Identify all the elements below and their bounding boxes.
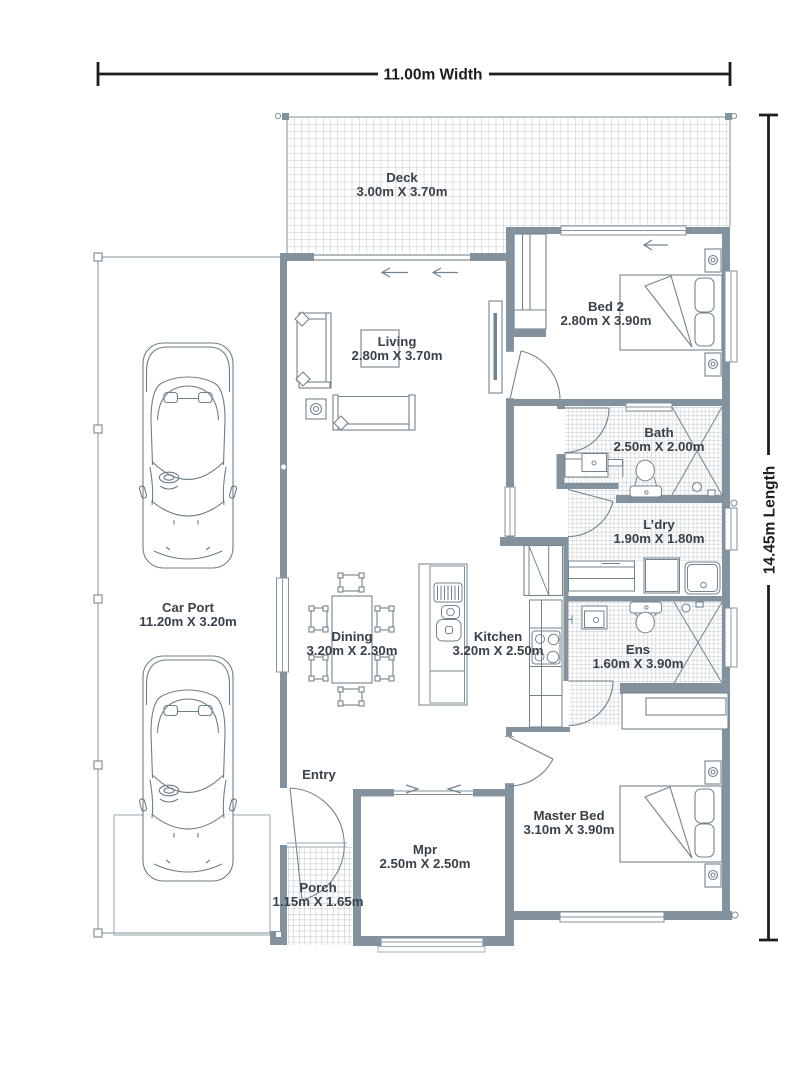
svg-text:2.80m X 3.70m: 2.80m X 3.70m — [352, 348, 443, 363]
svg-text:Bath: Bath — [644, 425, 673, 440]
svg-text:1.15m X 1.65m: 1.15m X 1.65m — [273, 894, 364, 909]
svg-text:3.20m X 2.30m: 3.20m X 2.30m — [307, 643, 398, 658]
svg-text:Car Port: Car Port — [162, 600, 215, 615]
svg-text:Dining: Dining — [331, 629, 372, 644]
svg-text:Ens: Ens — [626, 642, 650, 657]
svg-text:Kitchen: Kitchen — [474, 629, 522, 644]
svg-text:14.45m Length: 14.45m Length — [762, 466, 779, 575]
svg-text:3.20m X 2.50m: 3.20m X 2.50m — [453, 643, 544, 658]
svg-text:Master Bed: Master Bed — [533, 808, 604, 823]
svg-text:3.10m X 3.90m: 3.10m X 3.90m — [524, 822, 615, 837]
svg-text:1.90m X 1.80m: 1.90m X 1.80m — [614, 531, 705, 546]
svg-text:11.00m Width: 11.00m Width — [384, 67, 483, 84]
svg-text:L’dry: L’dry — [643, 517, 675, 532]
svg-text:Living: Living — [378, 334, 417, 349]
svg-text:Entry: Entry — [302, 767, 336, 782]
svg-text:Deck: Deck — [386, 170, 418, 185]
svg-text:Bed 2: Bed 2 — [588, 299, 624, 314]
svg-text:Porch: Porch — [299, 880, 336, 895]
svg-text:3.00m X 3.70m: 3.00m X 3.70m — [357, 184, 448, 199]
svg-text:2.80m X 3.90m: 2.80m X 3.90m — [561, 313, 652, 328]
svg-text:1.60m X 3.90m: 1.60m X 3.90m — [593, 656, 684, 671]
svg-text:11.20m X 3.20m: 11.20m X 3.20m — [139, 614, 237, 629]
svg-text:2.50m X 2.00m: 2.50m X 2.00m — [614, 439, 705, 454]
svg-text:Mpr: Mpr — [413, 842, 437, 857]
svg-text:2.50m X 2.50m: 2.50m X 2.50m — [380, 856, 471, 871]
